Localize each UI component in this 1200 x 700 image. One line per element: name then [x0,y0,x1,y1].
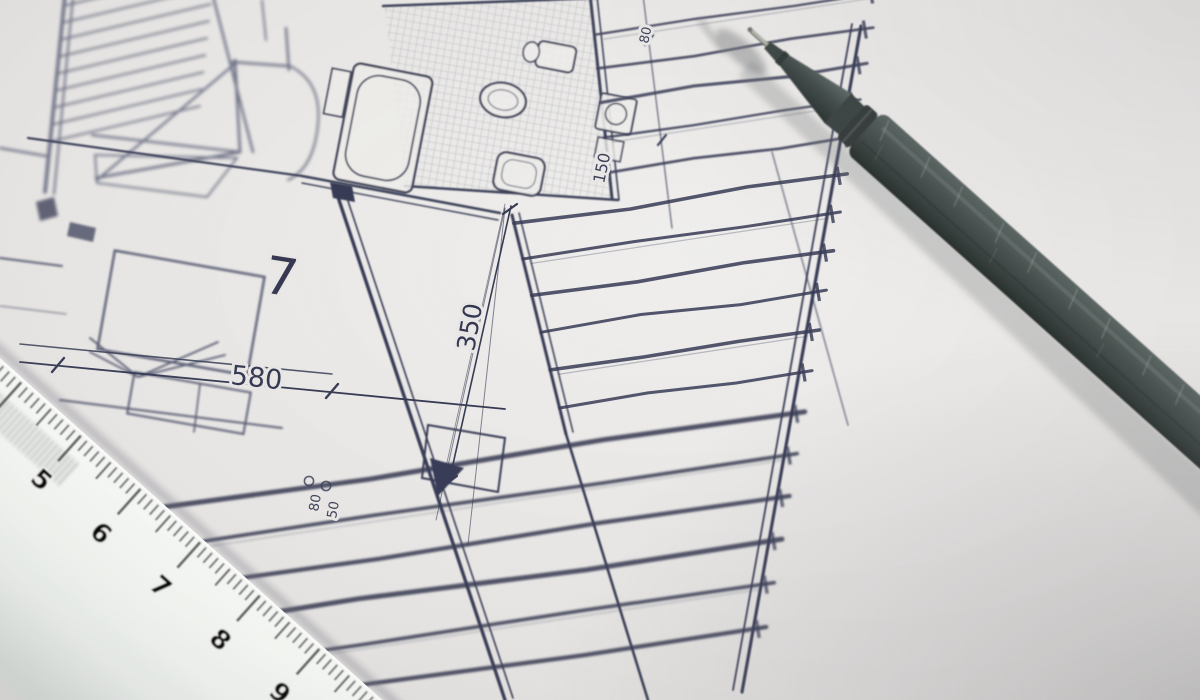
blueprint-photo-canvas: 7 580 350 150 80 80 50 5 6 7 8 9 [0,0,1200,700]
vignette-overlay [0,0,1200,700]
photo-of-floor-plan: 7 580 350 150 80 80 50 5 6 7 8 9 [0,0,1200,700]
